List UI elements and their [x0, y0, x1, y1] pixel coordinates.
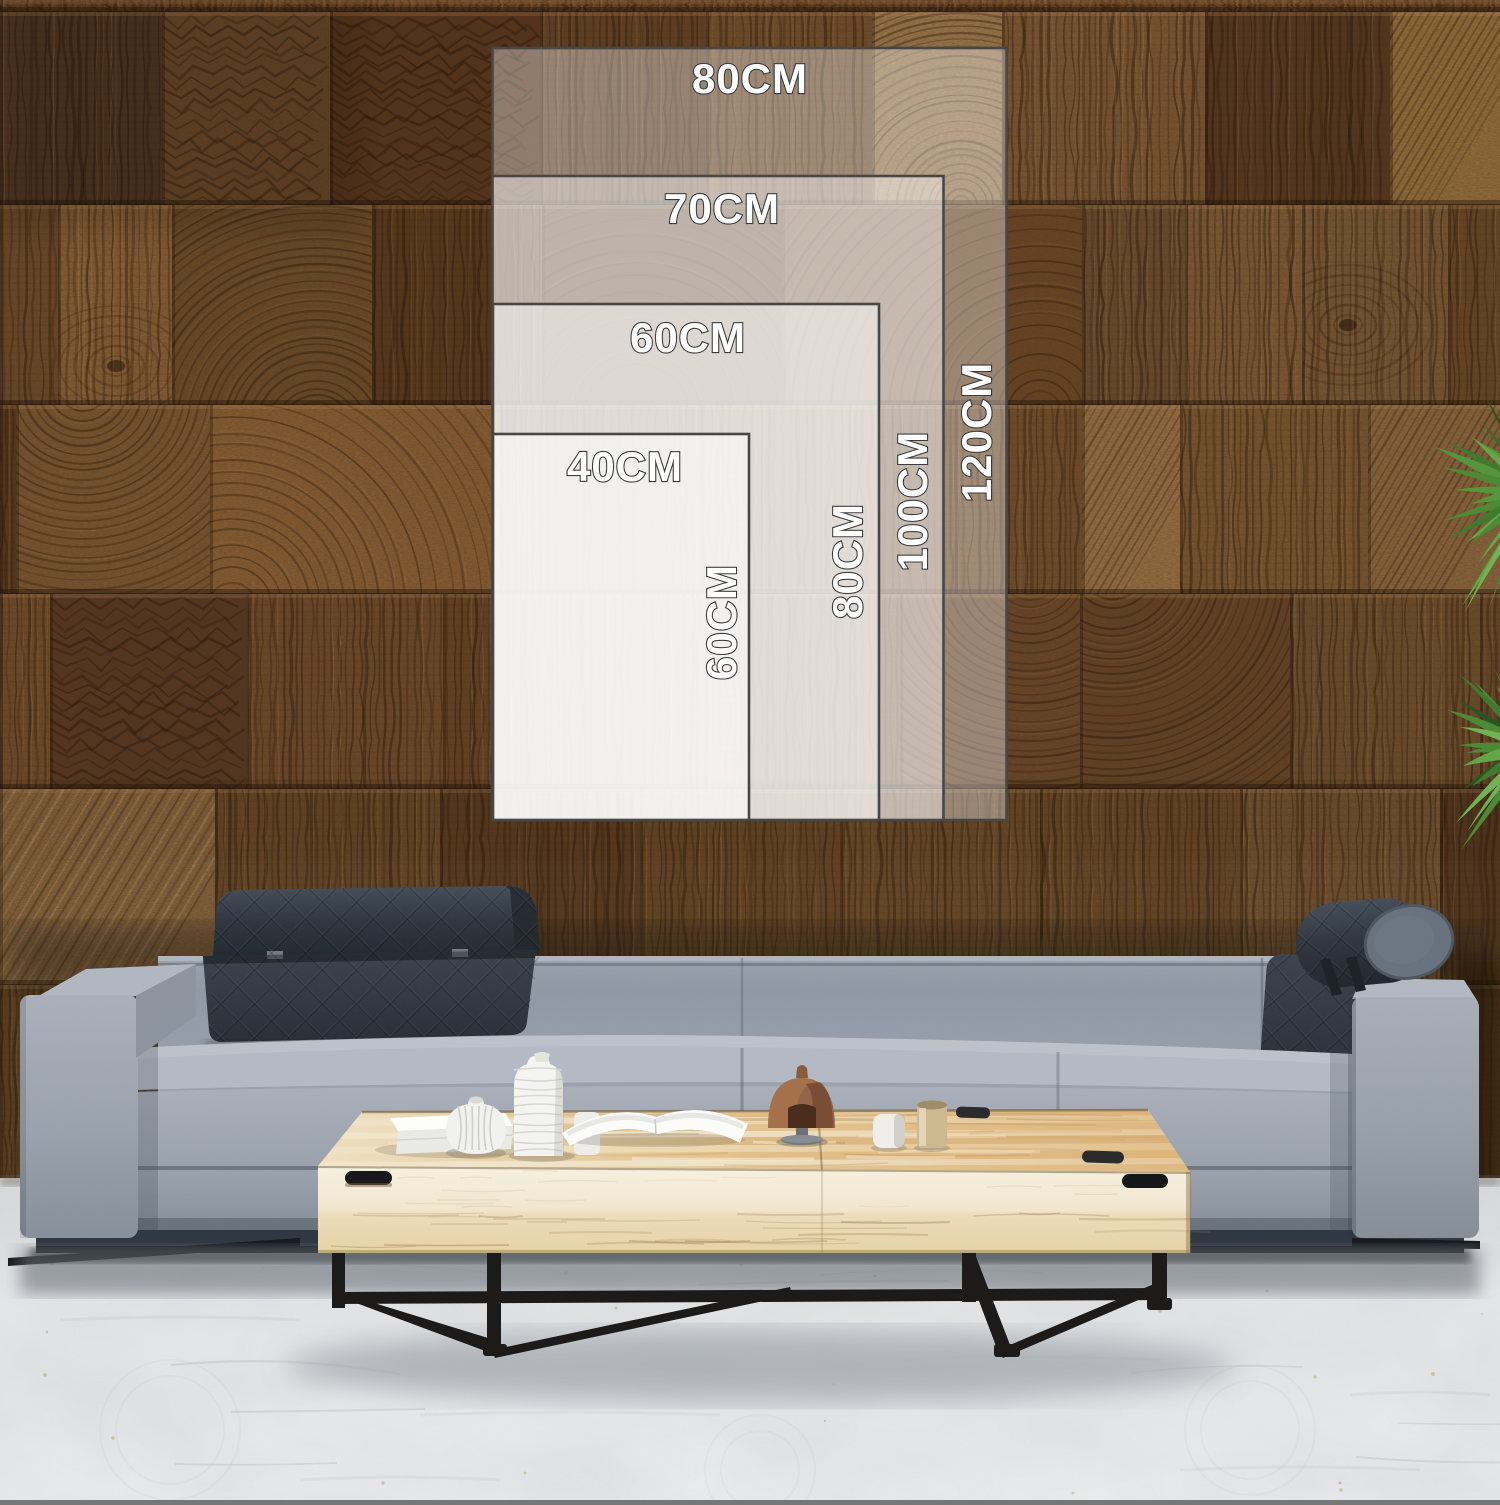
- svg-text:100CM: 100CM: [889, 431, 936, 571]
- svg-text:70CM: 70CM: [664, 185, 780, 232]
- svg-text:120CM: 120CM: [953, 362, 1000, 502]
- svg-text:80CM: 80CM: [692, 55, 808, 102]
- svg-text:60CM: 60CM: [698, 564, 745, 680]
- svg-text:80CM: 80CM: [824, 503, 871, 619]
- svg-text:60CM: 60CM: [630, 314, 746, 361]
- svg-text:40CM: 40CM: [567, 443, 683, 490]
